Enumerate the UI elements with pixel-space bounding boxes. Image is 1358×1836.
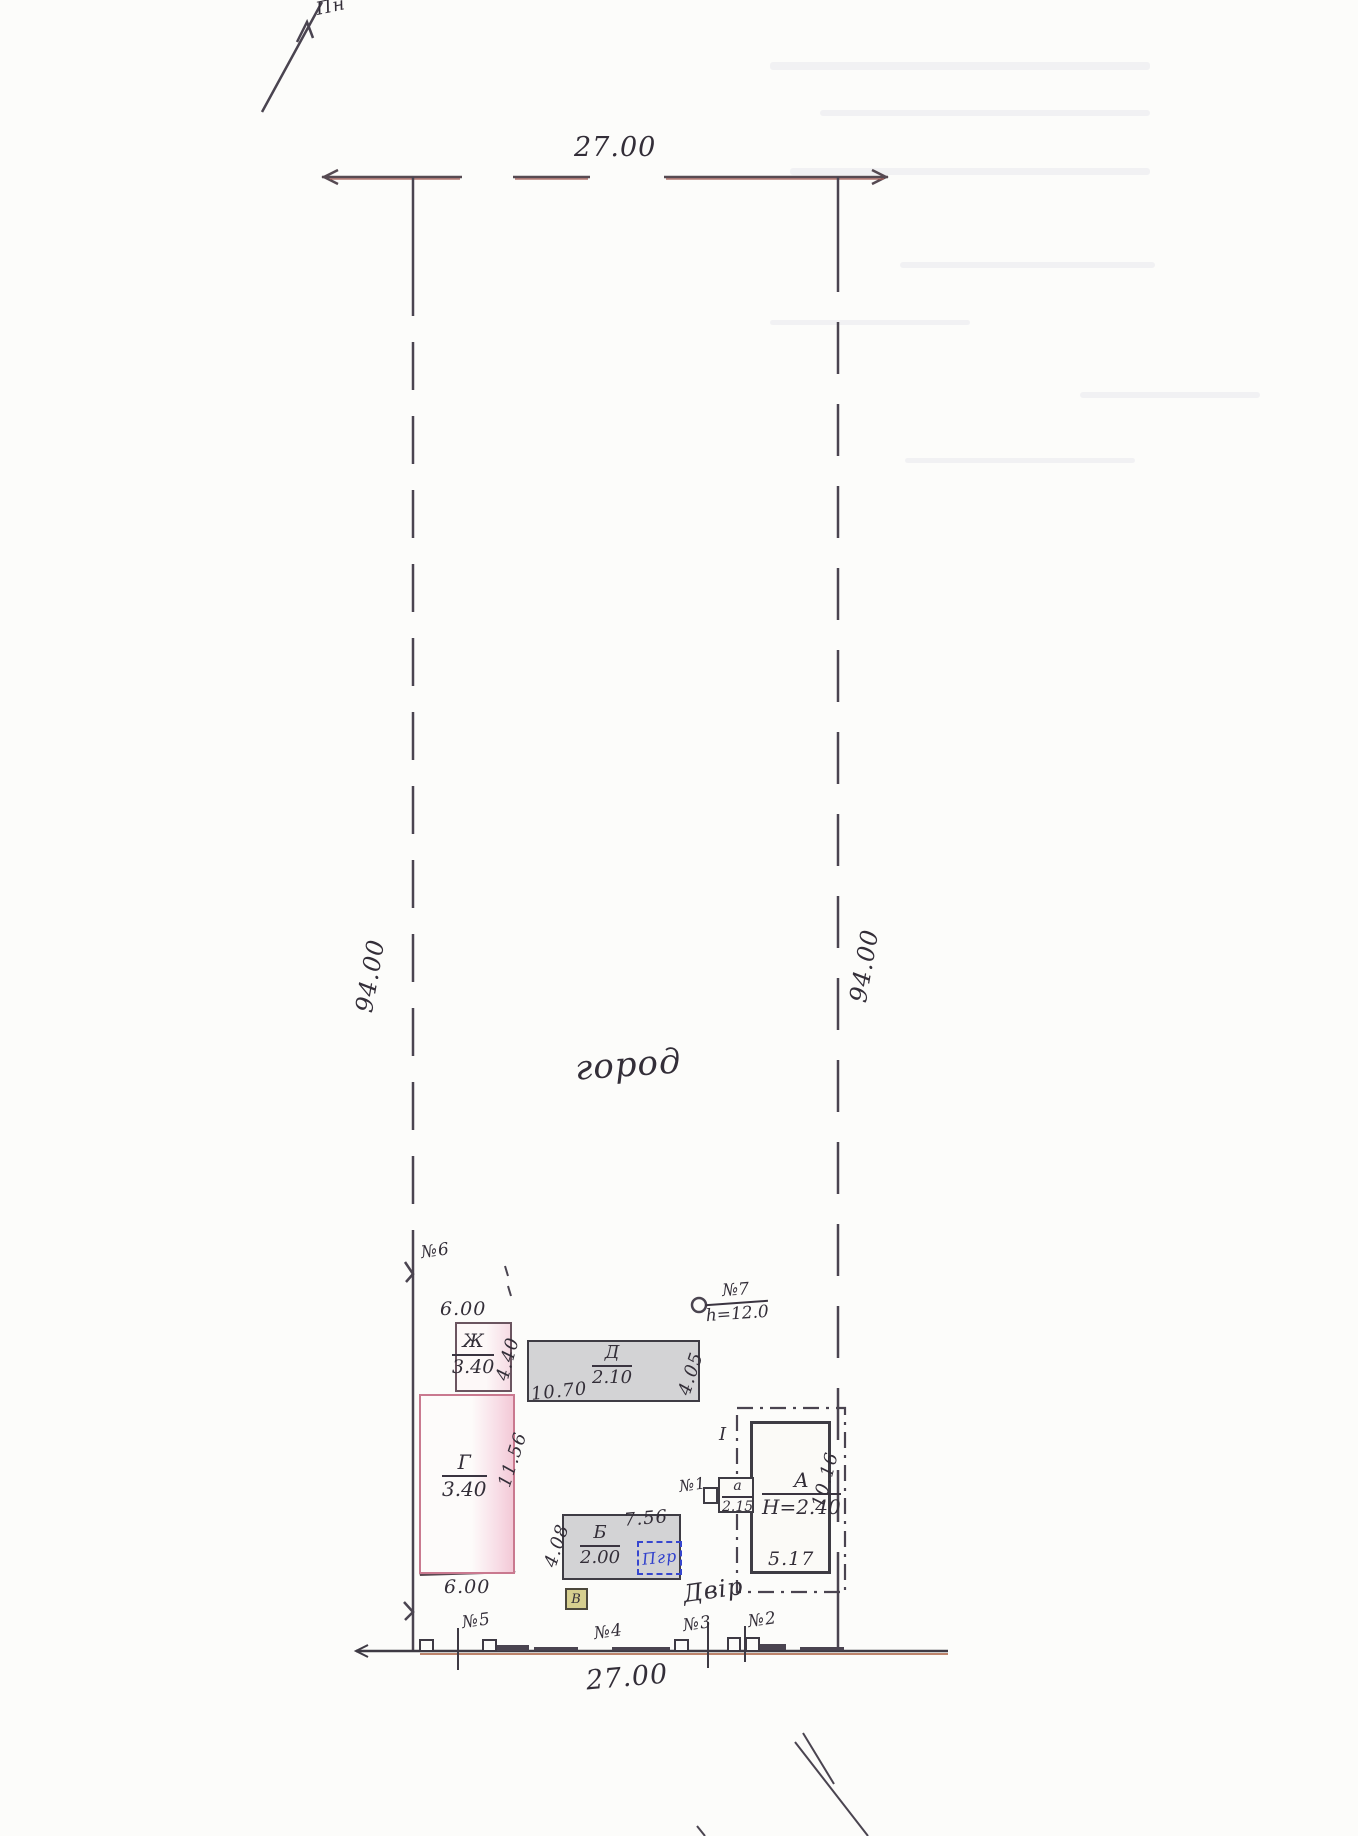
- north-arrow: [262, 2, 322, 112]
- annex-letter: а: [722, 1479, 753, 1498]
- building-b-label: Б 2.00: [580, 1524, 620, 1568]
- building-b-mark: 2.00: [580, 1547, 620, 1568]
- garden-label: город: [574, 1044, 683, 1085]
- marker-6: №6: [420, 1241, 451, 1262]
- marker-5: №5: [461, 1611, 492, 1632]
- building-zh-mark: 3.40: [452, 1356, 494, 1378]
- building-v-letter: В: [571, 1593, 582, 1606]
- building-zh-label: Ж 3.40: [452, 1332, 494, 1378]
- building-zh-dim-top: 6.00: [440, 1300, 486, 1319]
- annex-label: а 2.15: [722, 1479, 753, 1514]
- building-d-letter: Д: [592, 1344, 632, 1367]
- dim-top-value: 27.00: [574, 134, 656, 161]
- building-g-label: Г 3.40: [442, 1452, 487, 1500]
- marker-7-label: №7 h=12.0: [704, 1280, 770, 1326]
- building-b-dim-top: 7.56: [623, 1508, 668, 1530]
- plot-plan-scan: Пн 27.00 94.00 94.00 город №6 №7 h=12.0 …: [0, 0, 1358, 1836]
- plot-boundary-left: [404, 177, 413, 1651]
- top-dimension-line: [322, 170, 888, 184]
- bottom-right-strokes: [697, 1733, 868, 1836]
- cellar-label: Пгр: [641, 1548, 678, 1568]
- building-d-label: Д 2.10: [592, 1344, 632, 1388]
- marker-1: №1: [678, 1475, 707, 1495]
- building-a-roman: І: [719, 1426, 727, 1444]
- bottom-boundary-line: [356, 1645, 948, 1657]
- building-g-dim-bottom: 6.00: [444, 1578, 490, 1597]
- cellar-outline: Пгр: [637, 1541, 682, 1575]
- dim-bottom-value: 27.00: [585, 1660, 669, 1694]
- building-g-letter: Г: [442, 1452, 487, 1477]
- marker6-ticks: [505, 1266, 511, 1296]
- annex-mark: 2.15: [722, 1498, 753, 1515]
- building-b-letter: Б: [580, 1524, 620, 1547]
- building-d-mark: 2.10: [592, 1367, 632, 1388]
- marker-3: №3: [682, 1614, 713, 1635]
- marker-4: №4: [593, 1622, 624, 1643]
- marker-2: №2: [747, 1610, 778, 1631]
- marker-7-height: h=12.0: [705, 1302, 769, 1326]
- building-v: В: [565, 1588, 588, 1610]
- building-g-mark: 3.40: [442, 1477, 487, 1500]
- building-a-dim-bottom: 5.17: [768, 1550, 814, 1569]
- building-zh-letter: Ж: [452, 1332, 494, 1356]
